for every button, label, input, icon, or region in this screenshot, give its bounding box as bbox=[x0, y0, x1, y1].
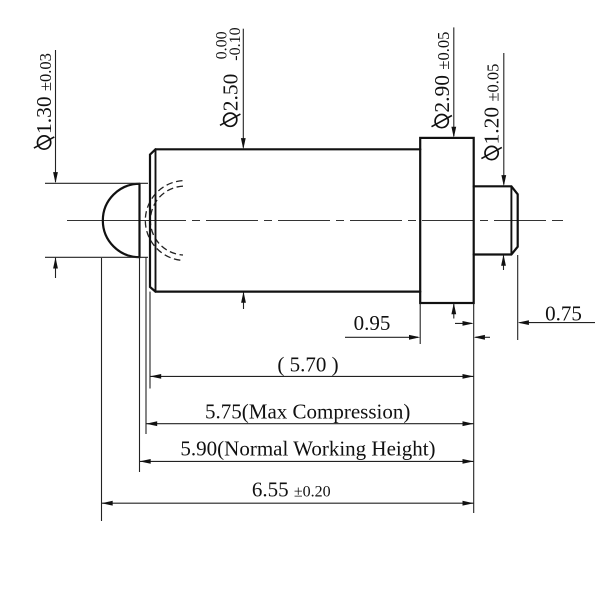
svg-text:1.20 ±0.05: 1.20 ±0.05 bbox=[480, 64, 504, 145]
svg-text:( 5.70 ): ( 5.70 ) bbox=[277, 353, 338, 377]
svg-text:5.90(Normal Working Height): 5.90(Normal Working Height) bbox=[180, 437, 435, 461]
svg-text:1.30 ±0.03: 1.30 ±0.03 bbox=[32, 53, 56, 134]
svg-text:2.90 ±0.05: 2.90 ±0.05 bbox=[430, 32, 454, 113]
svg-text:-0.10: -0.10 bbox=[227, 27, 244, 60]
svg-text:0.95: 0.95 bbox=[354, 311, 391, 335]
svg-text:5.75(Max Compression): 5.75(Max Compression) bbox=[205, 400, 410, 424]
svg-text:0.75: 0.75 bbox=[545, 302, 582, 326]
svg-text:2.50: 2.50 bbox=[218, 74, 242, 112]
